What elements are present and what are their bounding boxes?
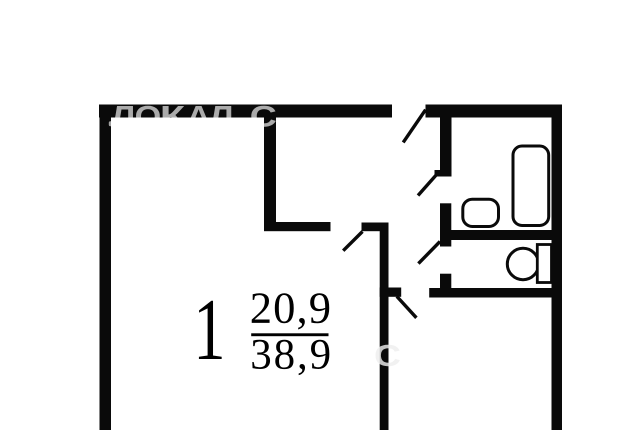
svg-text:С: С [250, 100, 277, 133]
svg-text:О: О [135, 100, 162, 133]
svg-text:Л: Л [210, 100, 234, 133]
svg-text:20,9: 20,9 [250, 282, 332, 332]
svg-text:Л: Л [111, 100, 135, 133]
svg-text:1: 1 [193, 281, 225, 379]
svg-text:С: С [374, 339, 401, 373]
svg-text:38,9: 38,9 [250, 331, 333, 378]
svg-text:А: А [186, 100, 211, 133]
svg-text:К: К [160, 100, 185, 133]
